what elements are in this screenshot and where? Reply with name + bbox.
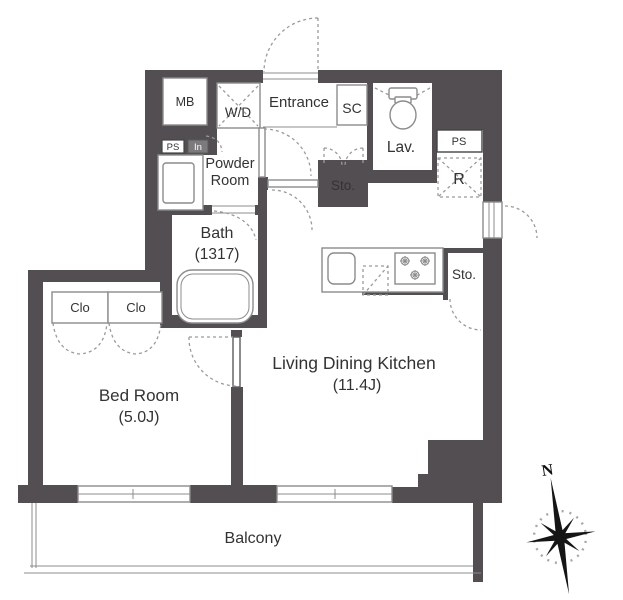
compass-rose-icon: N bbox=[515, 456, 605, 599]
floor-plan-page: MB W/D Entrance SC Lav. PS In PS R Powde… bbox=[0, 0, 623, 600]
room-label-ldk: Living Dining Kitchen bbox=[272, 353, 435, 373]
room-label-bath-size: (1317) bbox=[195, 246, 240, 263]
exterior-side-door bbox=[483, 202, 537, 238]
room-label-wd: W/D bbox=[225, 105, 251, 120]
kitchen-counter bbox=[322, 248, 443, 295]
toilet-icon bbox=[375, 88, 430, 129]
room-label-sto-hall: Sto. bbox=[331, 178, 355, 193]
kitchen-sink-icon bbox=[328, 253, 355, 284]
room-label-sto-kitchen: Sto. bbox=[452, 267, 476, 282]
room-label-bedroom-size: (5.0J) bbox=[119, 409, 160, 426]
room-label-clo-right: Clo bbox=[126, 300, 146, 315]
ldk-door bbox=[268, 180, 318, 230]
entrance-door-swing bbox=[264, 18, 318, 72]
room-label-bedroom: Bed Room bbox=[99, 386, 179, 405]
room-label-powder-1: Powder bbox=[205, 156, 254, 172]
hall-door bbox=[259, 128, 311, 177]
entrance-doorway bbox=[258, 70, 323, 83]
ldk-window-icon bbox=[277, 486, 392, 502]
room-label-powder-2: Room bbox=[211, 173, 250, 189]
kitchen-storage-door-swing bbox=[450, 299, 481, 330]
stove-icon bbox=[395, 253, 435, 284]
room-label-balcony: Balcony bbox=[225, 530, 282, 547]
room-label-ps-right: PS bbox=[452, 136, 467, 148]
room-label-sc: SC bbox=[342, 100, 361, 116]
vanity-sink-icon bbox=[158, 155, 203, 210]
room-label-clo-left: Clo bbox=[70, 300, 90, 315]
bedroom-door bbox=[189, 330, 242, 387]
closet-doors-swing bbox=[53, 323, 161, 354]
compass-north-label: N bbox=[540, 461, 555, 480]
room-label-refrigerator: R bbox=[453, 171, 465, 188]
room-label-lav: Lav. bbox=[387, 139, 415, 156]
floor-plan-svg: MB W/D Entrance SC Lav. PS In PS R Powde… bbox=[0, 0, 623, 600]
room-label-ps-left: PS bbox=[167, 142, 180, 153]
room-label-mb: MB bbox=[176, 95, 195, 109]
room-label-entrance: Entrance bbox=[269, 94, 329, 111]
bedroom-window-icon bbox=[78, 486, 190, 502]
room-label-ldk-size: (11.4J) bbox=[333, 377, 382, 394]
bathtub-icon bbox=[177, 270, 253, 323]
room-label-in: In bbox=[194, 142, 202, 153]
room-label-bath: Bath bbox=[201, 225, 234, 242]
